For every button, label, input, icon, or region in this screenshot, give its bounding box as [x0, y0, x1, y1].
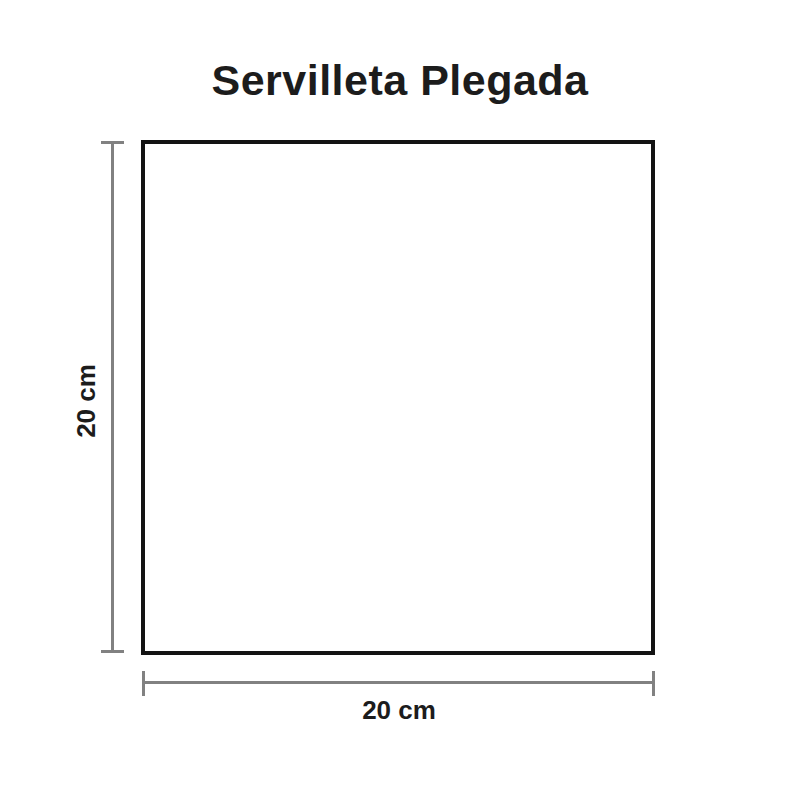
width-dimension-label: 20 cm [362, 695, 436, 726]
width-dimension-cap-right [652, 671, 655, 696]
napkin-square-outline [141, 140, 655, 655]
height-dimension-line [111, 141, 114, 653]
height-dimension-cap-top [101, 141, 124, 144]
diagram-canvas: Servilleta Plegada 20 cm 20 cm [0, 0, 800, 800]
height-dimension-label: 20 cm [71, 364, 102, 438]
height-dimension-cap-bottom [101, 650, 124, 653]
width-dimension-line [142, 681, 655, 684]
width-dimension-cap-left [142, 671, 145, 696]
diagram-title: Servilleta Plegada [0, 56, 800, 105]
